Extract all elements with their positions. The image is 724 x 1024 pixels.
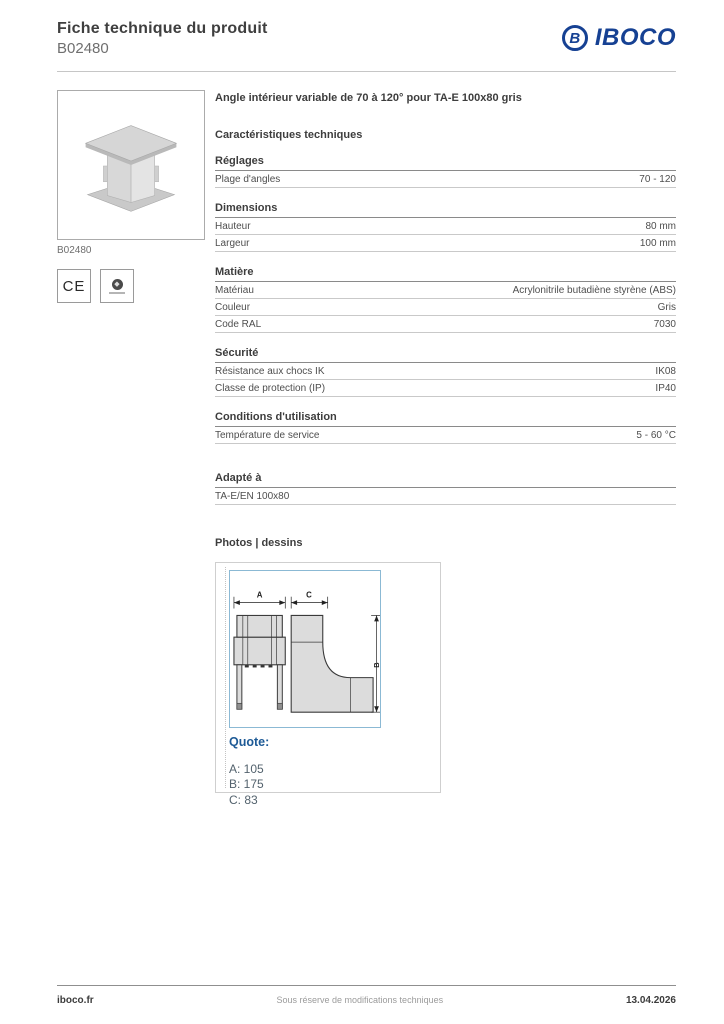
- row-value: 70 - 120: [639, 174, 676, 185]
- technical-drawing-frame: A C: [229, 570, 381, 728]
- quote-dim-b: B: 175: [229, 777, 440, 792]
- section-adapte: Adapté à TA-E/EN 100x80: [215, 472, 676, 505]
- section-conditions: Conditions d'utilisation Température de …: [215, 411, 676, 444]
- ce-mark: CE: [57, 269, 91, 303]
- page-title: Fiche technique du produit: [57, 20, 268, 38]
- ce-mark-icon: CE: [63, 278, 86, 295]
- row-label: Code RAL: [215, 319, 261, 330]
- recycling-mark: ◆: [100, 269, 134, 303]
- footer-disclaimer: Sous réserve de modifications techniques: [94, 995, 626, 1005]
- footer-website-link[interactable]: iboco.fr: [57, 995, 94, 1006]
- section-matiere: Matière Matériau Acrylonitrile butadiène…: [215, 266, 676, 333]
- technical-drawing: A C: [230, 571, 380, 727]
- row-value: IP40: [655, 383, 676, 394]
- table-row: Classe de protection (IP) IP40: [215, 380, 676, 397]
- dim-label-c: C: [306, 591, 312, 600]
- photo-caption: B02480: [57, 245, 205, 256]
- row-value: Acrylonitrile butadiène styrène (ABS): [513, 285, 676, 296]
- dim-label-a: A: [257, 591, 263, 600]
- table-row: Température de service 5 - 60 °C: [215, 427, 676, 444]
- row-label: Résistance aux chocs IK: [215, 366, 325, 377]
- row-label: Plage d'angles: [215, 174, 280, 185]
- table-row: Couleur Gris: [215, 299, 676, 316]
- certification-marks: CE ◆: [57, 269, 205, 303]
- section-heading: Réglages: [215, 155, 676, 171]
- product-photo-image: [58, 92, 204, 238]
- section-heading: Sécurité: [215, 347, 676, 363]
- row-label: Matériau: [215, 285, 254, 296]
- dim-label-b: B: [372, 662, 380, 667]
- quote-dim-c: C: 83: [229, 793, 440, 808]
- table-row: Matériau Acrylonitrile butadiène styrène…: [215, 282, 676, 299]
- footer-date: 13.04.2026: [626, 995, 676, 1006]
- row-value: 5 - 60 °C: [636, 430, 676, 441]
- table-row: Hauteur 80 mm: [215, 218, 676, 235]
- section-securite: Sécurité Résistance aux chocs IK IK08 Cl…: [215, 347, 676, 397]
- characteristics-title: Caractéristiques techniques: [215, 129, 676, 141]
- photos-heading: Photos | dessins: [215, 537, 676, 549]
- section-heading: Adapté à: [215, 472, 676, 488]
- left-column: B02480 CE ◆: [57, 90, 205, 793]
- row-value: 100 mm: [640, 238, 676, 249]
- scan-artifact-line: [225, 567, 226, 788]
- row-value: 7030: [654, 319, 676, 330]
- row-label: Classe de protection (IP): [215, 383, 325, 394]
- row-value: Gris: [658, 302, 676, 313]
- row-value: IK08: [655, 366, 676, 377]
- quote-label: Quote:: [229, 735, 440, 749]
- right-column: Angle intérieur variable de 70 à 120° po…: [215, 90, 676, 793]
- table-row: Code RAL 7030: [215, 316, 676, 333]
- section-dimensions: Dimensions Hauteur 80 mm Largeur 100 mm: [215, 202, 676, 252]
- section-heading: Conditions d'utilisation: [215, 411, 676, 427]
- brand-wordmark: IBOCO: [595, 24, 676, 52]
- row-label: Température de service: [215, 430, 320, 441]
- row-label: Largeur: [215, 238, 249, 249]
- product-photo: [57, 90, 205, 240]
- row-label: TA-E/EN 100x80: [215, 491, 289, 502]
- product-name: Angle intérieur variable de 70 à 120° po…: [215, 92, 676, 104]
- section-reglages: Réglages Plage d'angles 70 - 120: [215, 155, 676, 188]
- footer: iboco.fr Sous réserve de modifications t…: [57, 985, 676, 1006]
- header: Fiche technique du produit B02480 B IBOC…: [57, 20, 676, 72]
- technical-drawing-card: A C: [215, 562, 441, 793]
- table-row: Résistance aux chocs IK IK08: [215, 363, 676, 380]
- product-code: B02480: [57, 40, 268, 57]
- datasheet-page: Fiche technique du produit B02480 B IBOC…: [0, 0, 724, 1024]
- table-row: Largeur 100 mm: [215, 235, 676, 252]
- row-label: Hauteur: [215, 221, 251, 232]
- table-row: TA-E/EN 100x80: [215, 488, 676, 505]
- recycling-mark-text: [109, 292, 125, 294]
- main-content: B02480 CE ◆ Angle intérieur variable de …: [57, 90, 676, 793]
- brand-logo-icon: B: [562, 25, 588, 51]
- quote-dimensions: A: 105 B: 175 C: 83: [229, 762, 440, 808]
- recycling-icon: ◆: [112, 279, 123, 290]
- section-heading: Dimensions: [215, 202, 676, 218]
- row-value: 80 mm: [645, 221, 676, 232]
- table-row: Plage d'angles 70 - 120: [215, 171, 676, 188]
- row-label: Couleur: [215, 302, 250, 313]
- header-titles: Fiche technique du produit B02480: [57, 20, 268, 57]
- quote-dim-a: A: 105: [229, 762, 440, 777]
- brand-logo: B IBOCO: [562, 24, 676, 52]
- section-heading: Matière: [215, 266, 676, 282]
